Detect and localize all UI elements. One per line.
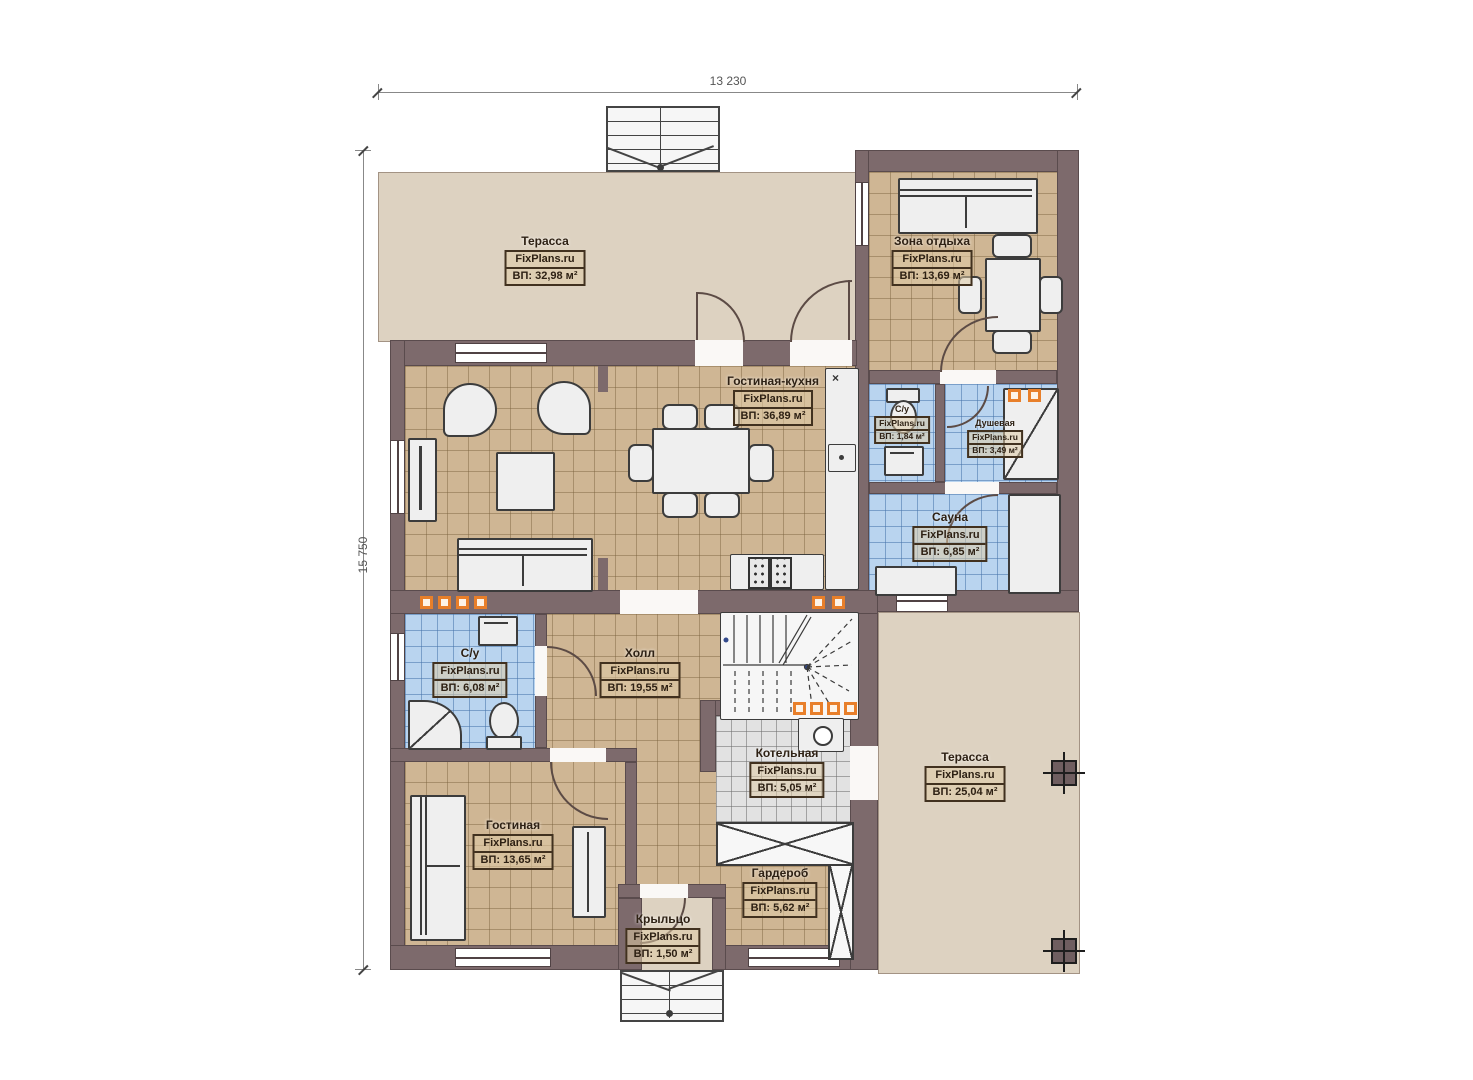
- door-opening: [695, 340, 743, 366]
- watermark-box: FixPlans.ru ВП: 32,98 м²: [505, 250, 586, 286]
- brand-watermark: FixPlans.ru: [475, 836, 552, 851]
- room-area: ВП: 5,05 м²: [751, 779, 822, 796]
- sofa-divider: [425, 865, 460, 867]
- window: [390, 440, 405, 514]
- steps-axis-dot: [657, 164, 664, 171]
- fireplace-line: [419, 446, 422, 510]
- room-name: Котельная: [749, 746, 824, 760]
- brand-watermark: FixPlans.ru: [751, 764, 822, 779]
- steps-axis-dot: [666, 1010, 673, 1017]
- room-name: Холл: [600, 646, 681, 660]
- vent-marker: [827, 702, 840, 715]
- room-area: ВП: 25,04 м²: [927, 783, 1004, 800]
- room-area: ВП: 19,55 м²: [602, 679, 679, 696]
- room-name: Гостиная-кухня: [727, 374, 819, 388]
- chair: [628, 444, 654, 482]
- column-axis: [1063, 930, 1065, 972]
- brand-watermark: FixPlans.ru: [914, 528, 985, 543]
- door-opening: [640, 884, 688, 898]
- window: [748, 948, 840, 967]
- vent-marker: [420, 596, 433, 609]
- fireplace: [408, 438, 437, 522]
- room-name: Гостиная: [473, 818, 554, 832]
- sofa-back-line: [420, 797, 422, 935]
- chair: [748, 444, 774, 482]
- brand-watermark: FixPlans.ru: [876, 418, 928, 429]
- dimension-line-top: [378, 92, 1078, 93]
- passage-opening: [620, 590, 698, 614]
- chair: [1039, 276, 1063, 314]
- sink: [478, 616, 518, 646]
- sofa-back-line: [900, 189, 1032, 191]
- brand-watermark: FixPlans.ru: [602, 664, 679, 679]
- built-in-closet: [716, 822, 854, 866]
- brand-watermark: FixPlans.ru: [969, 432, 1021, 443]
- entrance-steps-top: [606, 106, 720, 172]
- sauna-bench: [1008, 494, 1061, 594]
- window: [855, 182, 869, 246]
- vent-marker: [438, 596, 451, 609]
- room-area: ВП: 13,69 м²: [894, 267, 971, 284]
- room-label-wardrobe: Гардероб FixPlans.ru ВП: 5,62 м²: [742, 866, 817, 918]
- stove: [748, 557, 770, 589]
- brand-watermark: FixPlans.ru: [744, 884, 815, 899]
- door-opening: [945, 482, 999, 494]
- room-label-hall: Холл FixPlans.ru ВП: 19,55 м²: [600, 646, 681, 698]
- door-opening: [550, 748, 606, 762]
- room-name: Гардероб: [742, 866, 817, 880]
- room-label-terrace-top: Терасса FixPlans.ru ВП: 32,98 м²: [505, 234, 586, 286]
- watermark-box: FixPlans.ru ВП: 1,84 м²: [874, 416, 930, 444]
- brand-watermark: FixPlans.ru: [735, 392, 812, 407]
- wall-stub: [598, 558, 608, 590]
- room-area: ВП: 13,65 м²: [475, 851, 552, 868]
- vent-marker: [1028, 389, 1041, 402]
- watermark-box: FixPlans.ru ВП: 13,69 м²: [892, 250, 973, 286]
- vent-marker: [793, 702, 806, 715]
- steps-axis-line: [660, 106, 661, 168]
- watermark-box: FixPlans.ru ВП: 19,55 м²: [600, 662, 681, 698]
- wall: [712, 898, 726, 970]
- room-area: ВП: 6,08 м²: [434, 679, 505, 696]
- chair: [992, 330, 1032, 354]
- brand-watermark: FixPlans.ru: [894, 252, 971, 267]
- wall: [700, 700, 716, 772]
- vent-marker: [456, 596, 469, 609]
- room-name: Терасса: [505, 234, 586, 248]
- toilet-tank: [486, 736, 522, 750]
- column-axis: [1063, 752, 1065, 794]
- watermark-box: FixPlans.ru ВП: 3,49 м²: [967, 430, 1023, 458]
- room-name: Душевая: [967, 418, 1023, 428]
- boiler-circle: [813, 726, 833, 746]
- floor-plan: 13 230 15 750 Терасса FixPlans.ru ВП: 32…: [0, 0, 1473, 1080]
- watermark-box: FixPlans.ru ВП: 5,05 м²: [749, 762, 824, 798]
- chair: [704, 492, 740, 518]
- watermark-box: FixPlans.ru ВП: 5,62 м²: [742, 882, 817, 918]
- room-label-shower: Душевая FixPlans.ru ВП: 3,49 м²: [967, 418, 1023, 458]
- staircase-icon: [721, 613, 855, 716]
- door-leaf: [696, 292, 698, 340]
- sink: [884, 446, 924, 476]
- wardrobe-cabinet: [828, 864, 854, 960]
- door-leaf: [848, 280, 850, 340]
- chair: [662, 492, 698, 518]
- room-area: ВП: 3,49 м²: [969, 443, 1021, 456]
- room-label-living-kitchen: Гостиная-кухня FixPlans.ru ВП: 36,89 м²: [727, 374, 819, 426]
- armchair: [443, 383, 497, 437]
- vent-marker: [810, 702, 823, 715]
- room-name: С/у: [874, 404, 930, 414]
- wall: [935, 384, 945, 482]
- door-opening: [535, 646, 547, 696]
- watermark-box: FixPlans.ru ВП: 36,89 м²: [733, 390, 814, 426]
- sofa-divider: [965, 195, 967, 228]
- room-label-porch: Крыльцо FixPlans.ru ВП: 1,50 м²: [625, 912, 700, 964]
- room-name: Сауна: [912, 510, 987, 524]
- door-opening: [940, 370, 996, 384]
- room-name: Зона отдыха: [892, 234, 973, 248]
- room-label-terrace-right: Терасса FixPlans.ru ВП: 25,04 м²: [925, 750, 1006, 802]
- vent-marker: [474, 596, 487, 609]
- watermark-box: FixPlans.ru ВП: 1,50 м²: [625, 928, 700, 964]
- counter-corner-mark: ×: [832, 371, 839, 385]
- cabinet: [572, 826, 606, 918]
- vent-marker: [844, 702, 857, 715]
- room-name: Терасса: [925, 750, 1006, 764]
- cabinet-line: [587, 832, 589, 912]
- wall: [855, 150, 1079, 172]
- vent-marker: [812, 596, 825, 609]
- room-label-sauna: Сауна FixPlans.ru ВП: 6,85 м²: [912, 510, 987, 562]
- room-name: Крыльцо: [625, 912, 700, 926]
- room-name: С/у: [432, 646, 507, 660]
- chair: [992, 234, 1032, 258]
- watermark-box: FixPlans.ru ВП: 13,65 м²: [473, 834, 554, 870]
- coffee-table: [496, 452, 555, 511]
- room-area: ВП: 32,98 м²: [507, 267, 584, 284]
- dimension-label-top: 13 230: [378, 74, 1078, 88]
- kitchen-counter: [825, 368, 859, 590]
- brand-watermark: FixPlans.ru: [507, 252, 584, 267]
- brand-watermark: FixPlans.ru: [434, 664, 505, 679]
- chair: [662, 404, 698, 430]
- brand-watermark: FixPlans.ru: [927, 768, 1004, 783]
- dining-table: [652, 428, 750, 494]
- window: [455, 343, 547, 363]
- wall-stub: [598, 366, 608, 392]
- room-label-lounge: Зона отдыха FixPlans.ru ВП: 13,69 м²: [892, 234, 973, 286]
- vent-marker: [1008, 389, 1021, 402]
- toilet: [489, 702, 519, 740]
- brand-watermark: FixPlans.ru: [627, 930, 698, 945]
- window: [390, 633, 405, 681]
- watermark-box: FixPlans.ru ВП: 6,08 м²: [432, 662, 507, 698]
- room-label-living: Гостиная FixPlans.ru ВП: 13,65 м²: [473, 818, 554, 870]
- room-area: ВП: 6,85 м²: [914, 543, 985, 560]
- sofa-back-line: [459, 548, 587, 550]
- dimension-label-left: 15 750: [356, 515, 370, 595]
- armchair: [537, 381, 591, 435]
- room-area: ВП: 1,50 м²: [627, 945, 698, 962]
- sauna-bench: [875, 566, 957, 596]
- sofa-divider: [522, 554, 524, 586]
- room-label-wc-left: С/у FixPlans.ru ВП: 6,08 м²: [432, 646, 507, 698]
- sofa: [410, 795, 466, 941]
- sofa: [898, 178, 1038, 234]
- sink-drain: [839, 455, 844, 460]
- terrace-top-floor: [378, 172, 859, 342]
- watermark-box: FixPlans.ru ВП: 6,85 м²: [912, 526, 987, 562]
- sink-line: [484, 622, 508, 624]
- room-label-boiler: Котельная FixPlans.ru ВП: 5,05 м²: [749, 746, 824, 798]
- door-opening: [790, 340, 852, 366]
- room-area: ВП: 36,89 м²: [735, 407, 812, 424]
- sink-line: [890, 452, 914, 454]
- room-area: ВП: 5,62 м²: [744, 899, 815, 916]
- room-area: ВП: 1,84 м²: [876, 429, 928, 442]
- room-label-wc-right: С/у FixPlans.ru ВП: 1,84 м²: [874, 404, 930, 444]
- door-opening: [850, 746, 878, 800]
- kitchen-sink: [828, 444, 856, 472]
- window: [455, 948, 551, 967]
- vent-marker: [832, 596, 845, 609]
- watermark-box: FixPlans.ru ВП: 25,04 м²: [925, 766, 1006, 802]
- oven: [770, 557, 792, 589]
- sofa: [457, 538, 593, 592]
